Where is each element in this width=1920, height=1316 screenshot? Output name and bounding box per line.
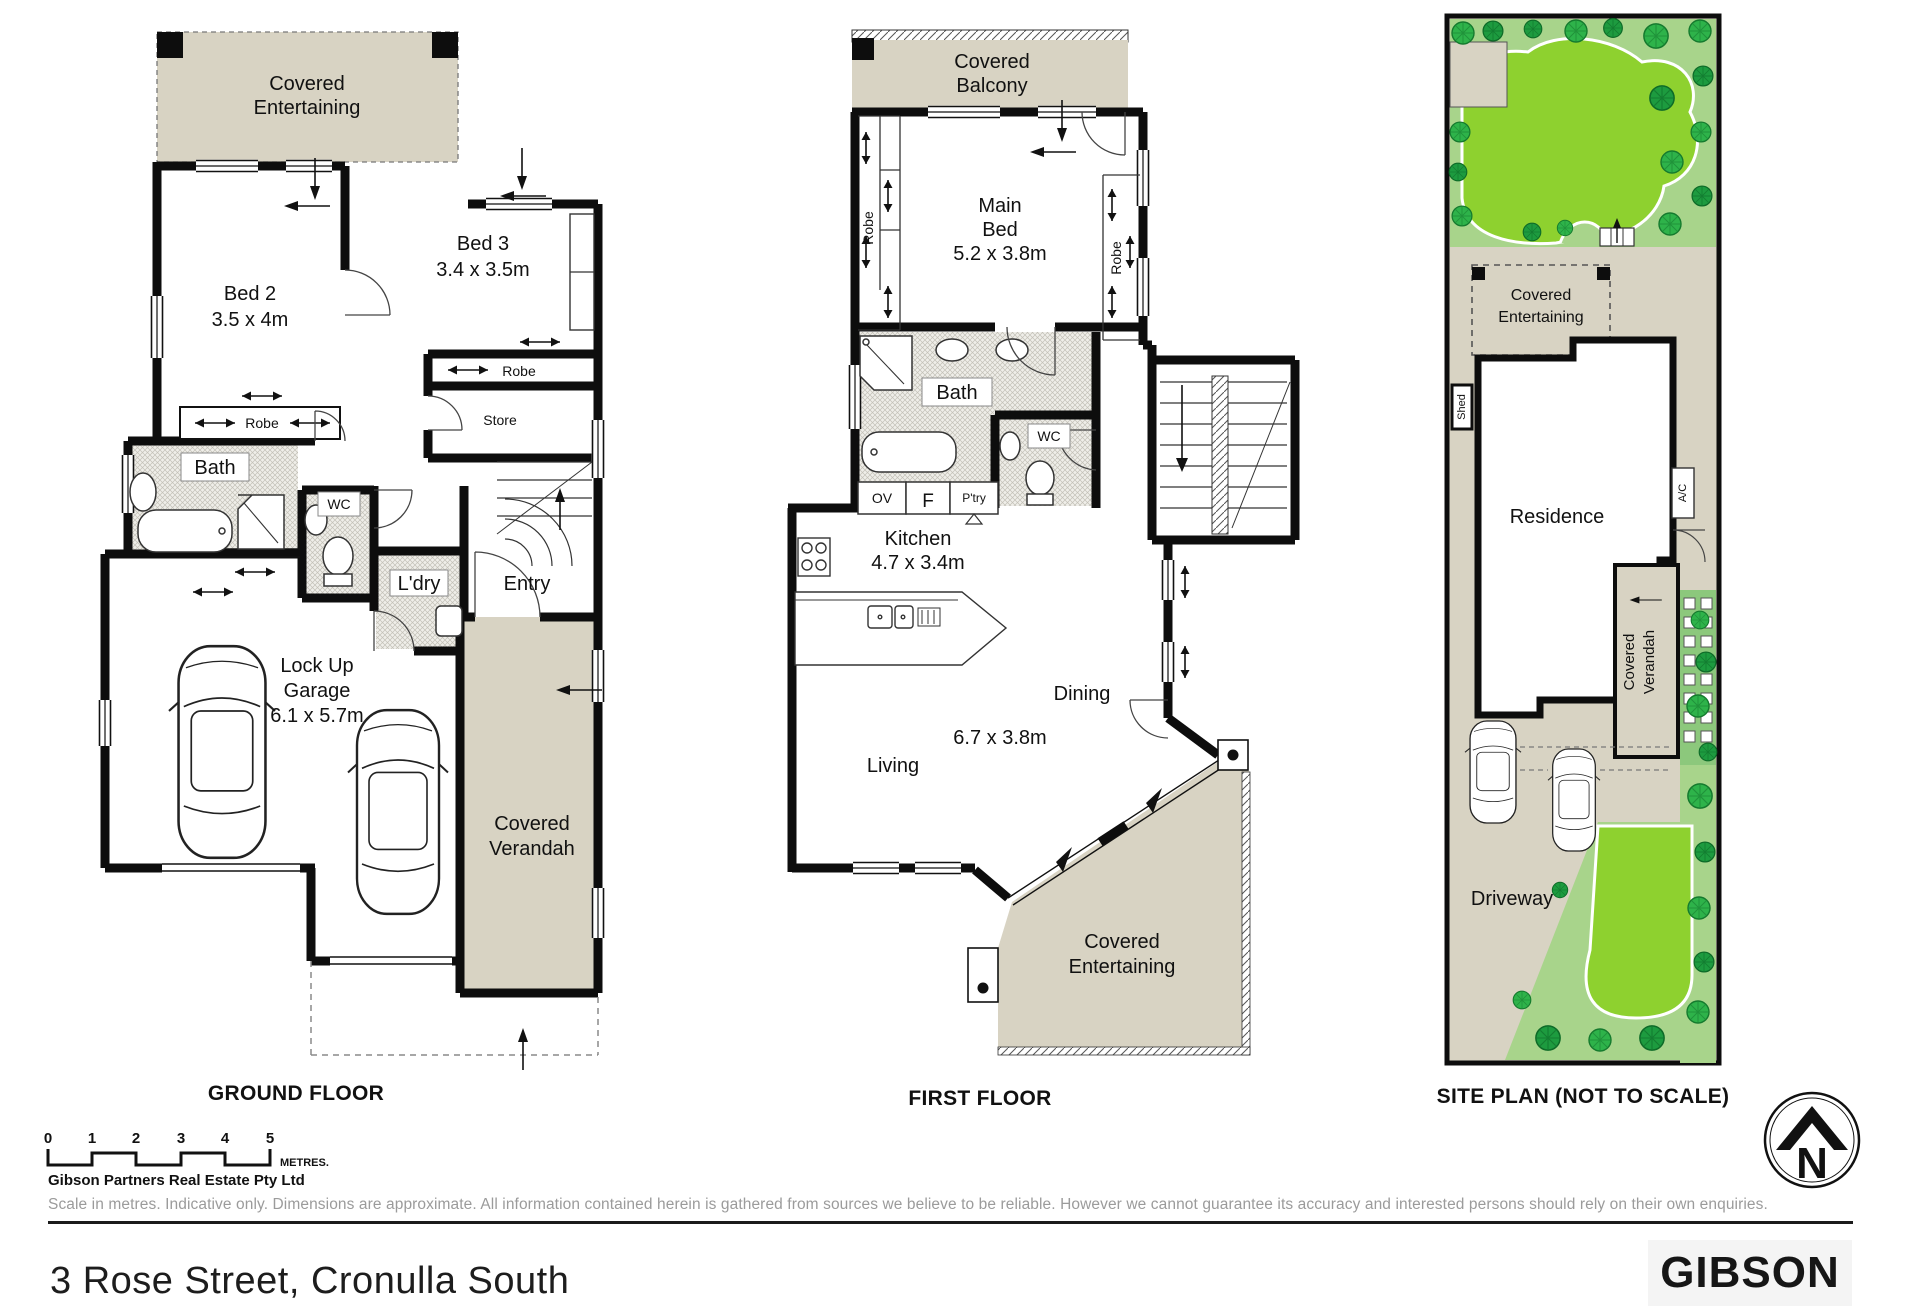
gf-ldry-label: L'dry: [390, 570, 448, 596]
disclaimer-text: Scale in metres. Indicative only. Dimens…: [48, 1196, 1768, 1214]
gf-stairs: [497, 462, 592, 566]
svg-text:WC: WC: [327, 496, 350, 512]
svg-text:WC: WC: [1037, 428, 1060, 444]
footer-divider: [48, 1221, 1853, 1224]
gf-wc-label: WC: [318, 492, 360, 516]
ff-ptry-label: P'try: [962, 491, 986, 505]
gf-garage-label-2: Garage: [284, 680, 351, 702]
gf-robe-bed2: Robe: [180, 392, 340, 440]
property-address: 3 Rose Street, Cronulla South: [50, 1260, 569, 1303]
first-floor-plan: Covered Balcony Covered Entertaining: [788, 30, 1295, 1110]
site-shed: Shed: [1452, 385, 1472, 429]
site-verandah-label-2: Verandah: [1641, 630, 1658, 694]
ff-mainbed-label-1: Main: [978, 195, 1021, 217]
gf-covered-verandah: Covered Verandah: [460, 617, 598, 997]
ff-wc-label: WC: [1028, 424, 1070, 448]
scale-tick-5: 5: [266, 1130, 274, 1147]
ff-ov-label: OV: [872, 490, 893, 506]
gf-verandah-label-1: Covered: [494, 813, 570, 835]
scale-tick-4: 4: [221, 1130, 230, 1147]
gf-bed3-name: Bed 3: [457, 233, 509, 255]
ff-dining-label: Dining: [1054, 683, 1111, 705]
gf-garage-dims: 6.1 x 5.7m: [270, 705, 363, 727]
ff-robe-left: Robe: [858, 116, 900, 330]
site-verandah: Covered Verandah: [1615, 565, 1678, 757]
gf-verandah-label-2: Verandah: [489, 838, 575, 860]
site-plan: Covered Entertaining Residence Covered V…: [1437, 16, 1730, 1108]
site-driveway-label: Driveway: [1471, 888, 1553, 910]
site-plan-caption: SITE PLAN (NOT TO SCALE): [1437, 1085, 1730, 1108]
site-shed-label: Shed: [1456, 394, 1468, 420]
site-covent-label-1: Covered: [1511, 287, 1571, 304]
gf-bath-label: Bath: [181, 453, 249, 481]
ff-bath-label: Bath: [922, 378, 992, 406]
company-name: Gibson Partners Real Estate Pty Ltd: [48, 1172, 305, 1189]
svg-text:L'dry: L'dry: [398, 573, 441, 595]
ff-f-label: F: [922, 491, 934, 512]
gf-laundry-tub: [436, 606, 462, 636]
gf-robe2-label: Robe: [245, 415, 279, 431]
ff-kitchen-dims: 4.7 x 3.4m: [871, 552, 964, 574]
ff-cabinets: OV F P'try: [858, 482, 998, 524]
ff-mainbed-dims: 5.2 x 3.8m: [953, 243, 1046, 265]
site-covent-label-2: Entertaining: [1498, 309, 1583, 326]
scale-tick-1: 1: [88, 1130, 96, 1147]
floorplan-page: Covered Entertaining Covered Verandah: [0, 0, 1920, 1316]
site-car-1: [1465, 721, 1521, 823]
gf-covent-label-1: Covered: [269, 73, 345, 95]
ground-floor-plan: Covered Entertaining Covered Verandah: [99, 32, 605, 1105]
site-car-2: [1548, 749, 1600, 851]
ff-stairs: [1160, 376, 1290, 534]
gibson-logo-text: GIBSON: [1660, 1248, 1840, 1298]
site-ac-label: A/C: [1677, 484, 1689, 502]
gf-covent-label-2: Entertaining: [254, 97, 361, 119]
gf-bed3-dims: 3.4 x 3.5m: [436, 259, 529, 281]
ground-floor-caption: GROUND FLOOR: [208, 1082, 384, 1105]
ff-robe-right-label: Robe: [1108, 241, 1124, 275]
floorplan-canvas: Covered Entertaining Covered Verandah: [0, 0, 1920, 1230]
first-floor-caption: FIRST FLOOR: [908, 1087, 1051, 1110]
ff-entertaining-label-1: Covered: [1084, 931, 1160, 953]
site-rear-garden: [1449, 19, 1716, 247]
scale-bar: 0 1 2 3 4 5 METRES.: [44, 1130, 329, 1169]
site-verandah-label-1: Covered: [1621, 634, 1638, 691]
gf-entry-label: Entry: [504, 573, 551, 595]
site-ac-unit: A/C: [1672, 468, 1694, 518]
scale-tick-2: 2: [132, 1130, 140, 1147]
gf-store-label: Store: [483, 412, 517, 428]
gibson-logo: GIBSON: [1648, 1240, 1852, 1306]
gf-bed2-name: Bed 2: [224, 283, 276, 305]
ff-kitchen-name: Kitchen: [885, 528, 952, 550]
ff-living-label: Living: [867, 755, 919, 777]
gf-robe3-label: Robe: [502, 363, 536, 379]
ff-covered-entertaining: Covered Entertaining: [968, 755, 1250, 1055]
ff-living-dining-dims: 6.7 x 3.8m: [953, 727, 1046, 749]
ff-balcony-label-2: Balcony: [956, 75, 1027, 97]
gf-car-1: [169, 646, 275, 858]
scale-tick-0: 0: [44, 1130, 52, 1147]
north-compass: N: [1765, 1093, 1859, 1188]
ff-mainbed-label-2: Bed: [982, 219, 1018, 241]
ff-entertaining-label-2: Entertaining: [1069, 956, 1176, 978]
gf-garage-label-1: Lock Up: [280, 655, 353, 677]
scale-unit-label: METRES.: [280, 1157, 329, 1169]
gf-covered-entertaining: Covered Entertaining: [157, 32, 458, 162]
ff-covered-balcony: Covered Balcony: [852, 30, 1128, 112]
svg-text:Bath: Bath: [936, 382, 977, 404]
ff-balcony-label-1: Covered: [954, 51, 1030, 73]
scale-tick-3: 3: [177, 1130, 185, 1147]
gf-bed2-dims: 3.5 x 4m: [212, 309, 289, 331]
site-residence-label: Residence: [1510, 506, 1605, 528]
ff-robe-right: Robe: [1103, 175, 1140, 340]
svg-text:Bath: Bath: [194, 457, 235, 479]
gf-car-2: [348, 710, 448, 914]
compass-n-label: N: [1796, 1139, 1828, 1188]
